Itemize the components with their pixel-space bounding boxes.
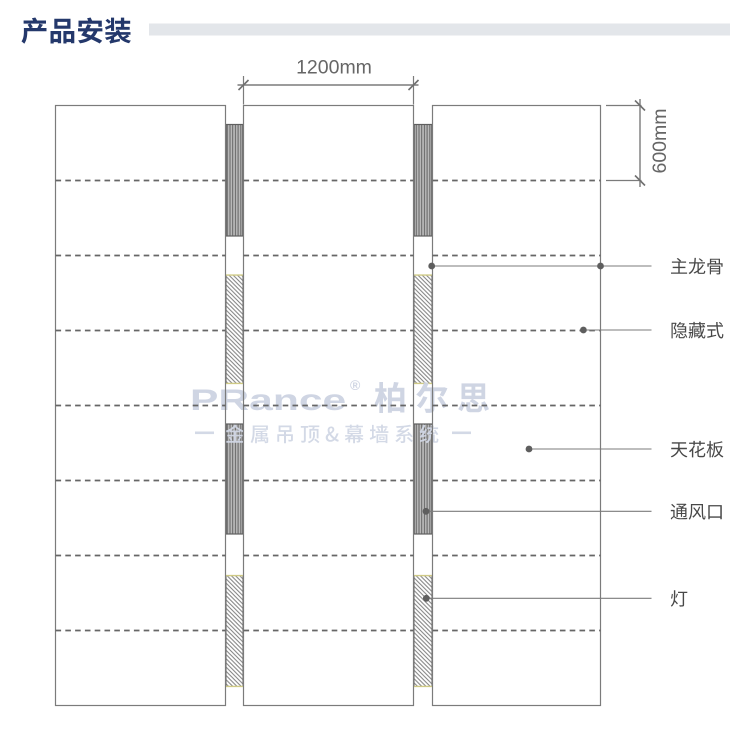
svg-text:PRance: PRance	[190, 383, 346, 416]
svg-text:1200mm: 1200mm	[296, 57, 372, 79]
svg-text:®: ®	[350, 377, 361, 393]
svg-text:600mm: 600mm	[649, 108, 671, 173]
